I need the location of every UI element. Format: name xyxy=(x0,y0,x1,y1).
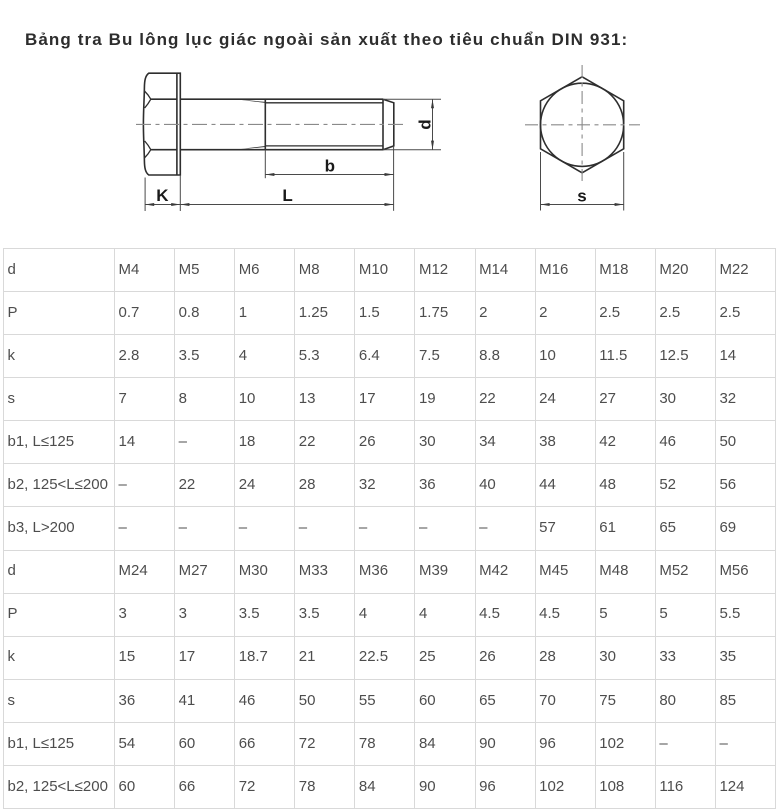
svg-text:L: L xyxy=(282,186,292,205)
svg-text:s: s xyxy=(577,187,586,206)
svg-text:K: K xyxy=(156,186,169,205)
svg-text:b: b xyxy=(325,156,335,175)
svg-text:d: d xyxy=(415,119,434,129)
